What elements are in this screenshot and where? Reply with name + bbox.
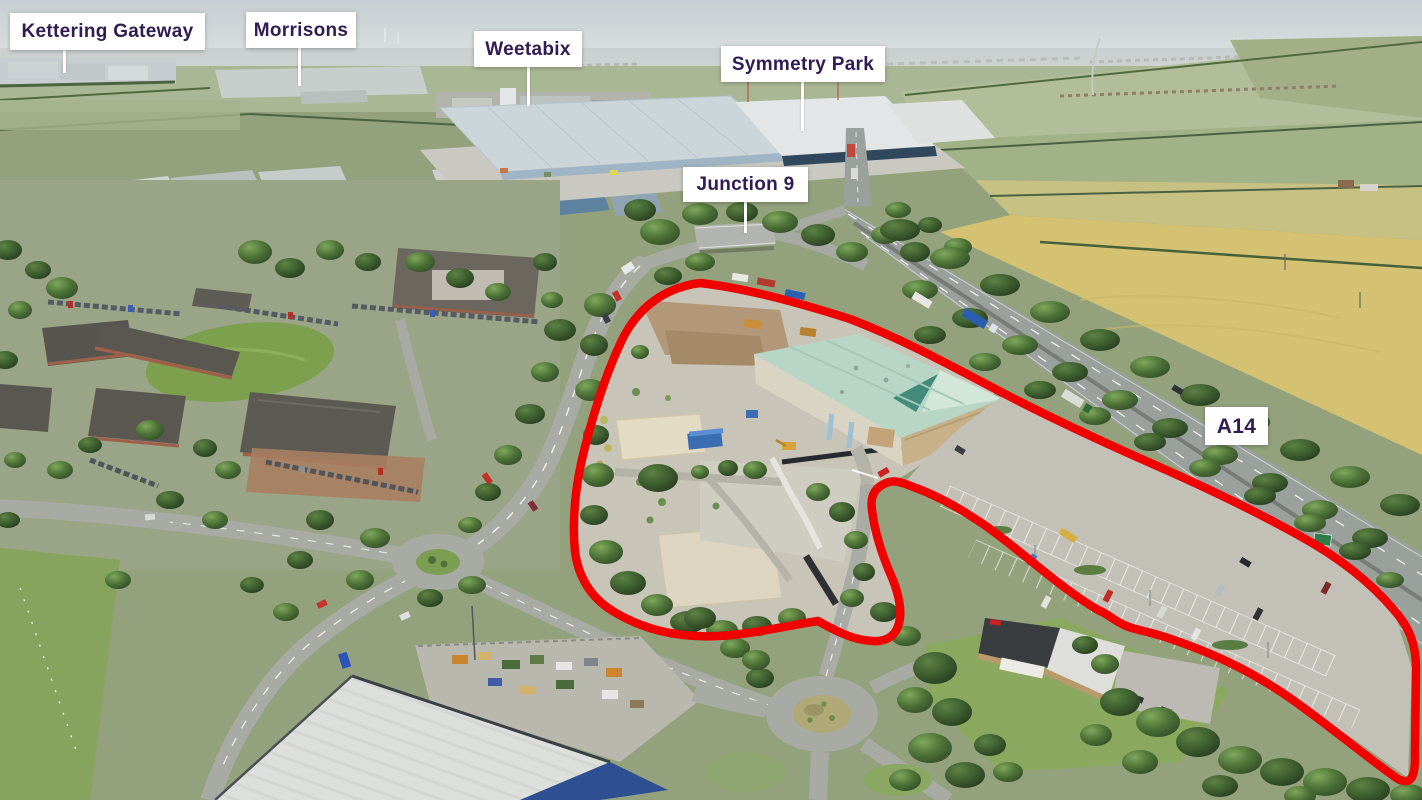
- map-label-symmetry-park: Symmetry Park: [721, 46, 885, 82]
- leader-line-weetabix: [527, 67, 530, 106]
- leader-line-morrisons: [298, 48, 301, 86]
- map-label-text: Symmetry Park: [732, 55, 874, 74]
- map-label-text: Kettering Gateway: [22, 22, 194, 41]
- map-label-weetabix: Weetabix: [474, 31, 582, 67]
- annotated-aerial-photo: Kettering Gateway Morrisons Weetabix Sym…: [0, 0, 1422, 800]
- leader-line-junction-9: [744, 202, 747, 233]
- map-label-text: Junction 9: [696, 175, 794, 194]
- map-label-text: A14: [1217, 416, 1256, 437]
- leader-line-symmetry-park: [801, 82, 804, 131]
- map-label-a14: A14: [1205, 407, 1268, 445]
- map-label-text: Morrisons: [254, 21, 349, 40]
- leader-line-kettering-gateway: [63, 50, 66, 73]
- map-label-junction-9: Junction 9: [683, 167, 808, 202]
- map-label-morrisons: Morrisons: [246, 12, 356, 48]
- aerial-photo-scene: [0, 0, 1422, 800]
- map-label-text: Weetabix: [485, 40, 570, 59]
- map-label-kettering-gateway: Kettering Gateway: [10, 13, 205, 50]
